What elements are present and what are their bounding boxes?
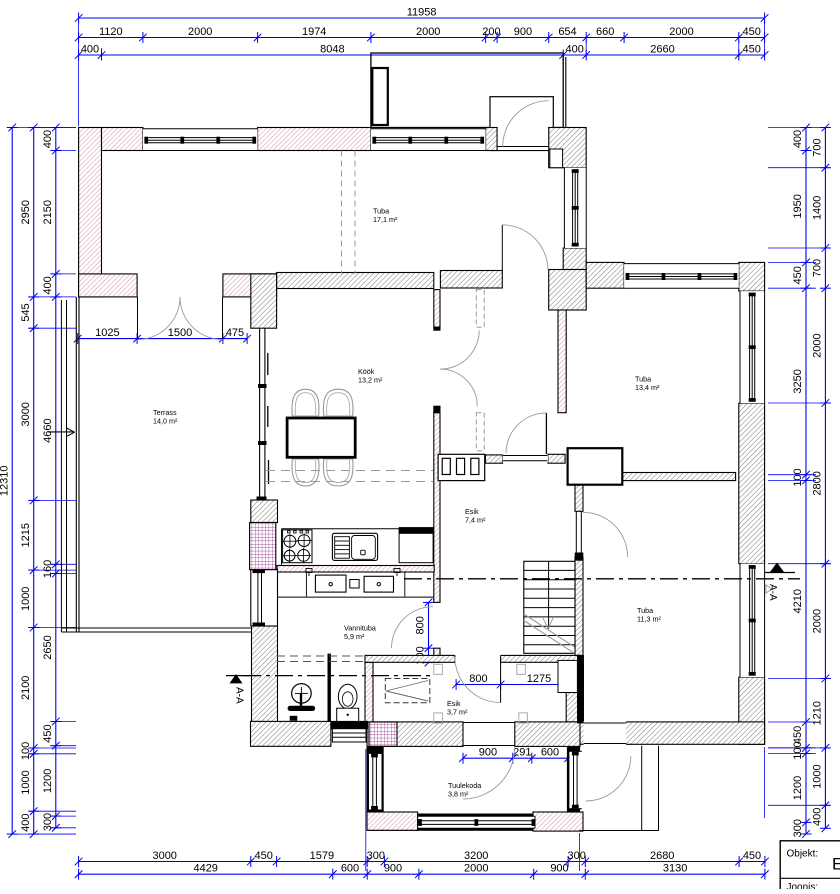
svg-text:Joonis:: Joonis: — [787, 882, 819, 889]
svg-text:450: 450 — [42, 724, 54, 742]
svg-text:1400: 1400 — [812, 196, 824, 220]
svg-text:13,2 m²: 13,2 m² — [358, 376, 383, 385]
svg-text:3200: 3200 — [464, 850, 488, 862]
svg-text:2800: 2800 — [812, 471, 824, 495]
svg-text:1500: 1500 — [168, 327, 192, 339]
svg-text:13,4 m²: 13,4 m² — [635, 383, 660, 392]
svg-text:1579: 1579 — [310, 850, 334, 862]
svg-text:1200: 1200 — [42, 769, 54, 793]
svg-text:450: 450 — [743, 850, 761, 862]
svg-text:1215: 1215 — [20, 523, 32, 547]
svg-text:160: 160 — [42, 560, 54, 578]
svg-text:1000: 1000 — [20, 770, 32, 794]
svg-text:400: 400 — [20, 814, 32, 832]
svg-text:600: 600 — [541, 747, 559, 759]
svg-text:11,3 m²: 11,3 m² — [637, 615, 661, 624]
svg-text:17,1 m²: 17,1 m² — [373, 215, 398, 224]
svg-text:1210: 1210 — [812, 701, 824, 725]
svg-text:450: 450 — [792, 726, 804, 744]
svg-text:2000: 2000 — [812, 333, 824, 357]
svg-text:300: 300 — [367, 850, 385, 862]
svg-text:4660: 4660 — [42, 418, 54, 442]
svg-text:900: 900 — [550, 863, 568, 875]
svg-text:800: 800 — [415, 616, 427, 634]
svg-text:3000: 3000 — [20, 402, 32, 426]
svg-text:400: 400 — [42, 130, 54, 148]
svg-text:291: 291 — [513, 747, 531, 759]
svg-text:4210: 4210 — [792, 589, 804, 613]
svg-text:100: 100 — [792, 468, 804, 486]
svg-text:450: 450 — [743, 26, 761, 38]
svg-text:1000: 1000 — [812, 764, 824, 788]
svg-text:800: 800 — [469, 673, 487, 685]
svg-text:450: 450 — [743, 43, 761, 55]
svg-text:400: 400 — [812, 808, 824, 826]
svg-text:2100: 2100 — [20, 676, 32, 700]
svg-text:5,9 m²: 5,9 m² — [344, 632, 365, 641]
svg-text:900: 900 — [384, 863, 402, 875]
svg-text:654: 654 — [558, 26, 576, 38]
svg-text:1275: 1275 — [527, 673, 551, 685]
svg-text:A-A: A-A — [767, 584, 778, 601]
svg-text:2000: 2000 — [464, 863, 488, 875]
svg-text:1950: 1950 — [792, 194, 804, 218]
svg-text:100: 100 — [792, 741, 804, 759]
svg-text:1000: 1000 — [20, 587, 32, 611]
svg-text:400: 400 — [792, 130, 804, 148]
svg-text:14,0 m²: 14,0 m² — [153, 417, 178, 426]
svg-text:450: 450 — [255, 850, 273, 862]
svg-text:450: 450 — [792, 266, 804, 284]
svg-text:200: 200 — [482, 26, 500, 38]
svg-text:400: 400 — [566, 43, 584, 55]
svg-text:3,8 m²: 3,8 m² — [448, 790, 469, 799]
svg-text:300: 300 — [568, 850, 586, 862]
svg-text:475: 475 — [226, 327, 244, 339]
svg-text:Objekt:: Objekt: — [787, 849, 819, 860]
svg-text:545: 545 — [20, 303, 32, 321]
svg-text:900: 900 — [479, 747, 497, 759]
svg-text:3250: 3250 — [792, 369, 804, 393]
svg-text:2950: 2950 — [20, 200, 32, 224]
svg-text:12310: 12310 — [0, 466, 10, 497]
svg-text:1974: 1974 — [302, 26, 326, 38]
svg-text:8048: 8048 — [320, 43, 344, 55]
svg-text:300: 300 — [792, 819, 804, 837]
svg-text:400: 400 — [81, 43, 99, 55]
svg-text:11958: 11958 — [407, 6, 437, 18]
svg-text:E: E — [832, 855, 840, 874]
svg-text:3,7 m²: 3,7 m² — [447, 708, 468, 717]
svg-text:2150: 2150 — [42, 200, 54, 224]
svg-text:700: 700 — [812, 138, 824, 156]
svg-text:300: 300 — [42, 813, 54, 831]
svg-text:100: 100 — [20, 742, 32, 760]
svg-text:2660: 2660 — [650, 43, 674, 55]
svg-text:1200: 1200 — [792, 776, 804, 800]
svg-text:600: 600 — [341, 863, 359, 875]
svg-text:2000: 2000 — [188, 26, 212, 38]
svg-text:3130: 3130 — [663, 863, 687, 875]
svg-text:1120: 1120 — [99, 26, 123, 38]
svg-text:4429: 4429 — [193, 863, 217, 875]
svg-text:3000: 3000 — [152, 850, 176, 862]
svg-text:400: 400 — [42, 276, 54, 294]
svg-text:700: 700 — [812, 259, 824, 277]
svg-text:660: 660 — [596, 26, 614, 38]
svg-text:2650: 2650 — [42, 635, 54, 659]
svg-text:A-A: A-A — [234, 687, 245, 704]
svg-text:2000: 2000 — [812, 609, 824, 633]
svg-text:900: 900 — [514, 26, 532, 38]
svg-text:2000: 2000 — [416, 26, 440, 38]
svg-text:2000: 2000 — [669, 26, 693, 38]
svg-text:2680: 2680 — [650, 850, 674, 862]
svg-text:7,4 m²: 7,4 m² — [465, 516, 486, 525]
svg-text:1025: 1025 — [95, 327, 119, 339]
